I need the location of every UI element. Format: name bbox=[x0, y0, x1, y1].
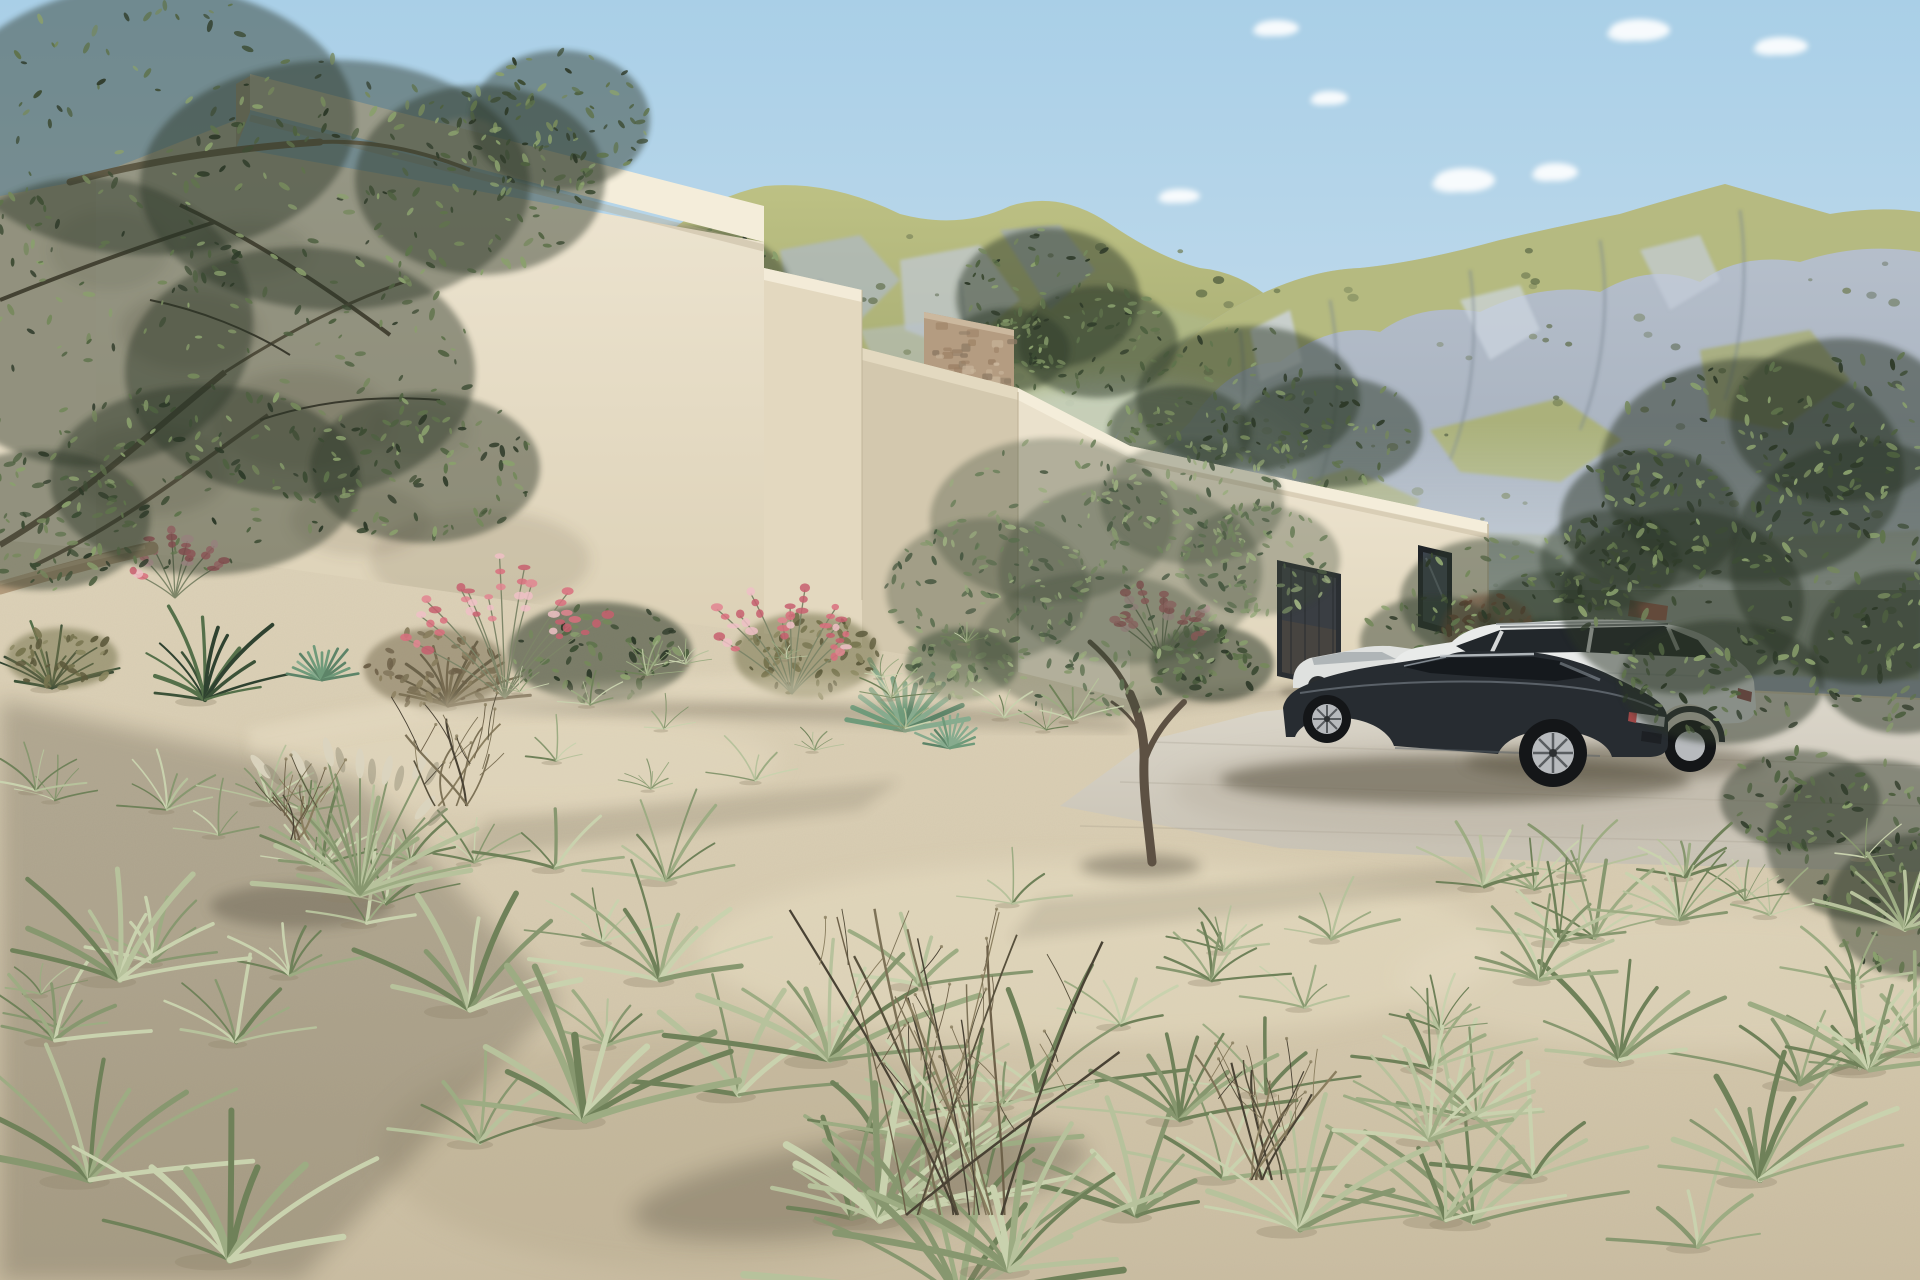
sedan-rear-wheel bbox=[1519, 719, 1587, 787]
render-canvas bbox=[0, 0, 1920, 1280]
architectural-render bbox=[0, 0, 1920, 1280]
sedan-front-wheel bbox=[1303, 695, 1351, 743]
